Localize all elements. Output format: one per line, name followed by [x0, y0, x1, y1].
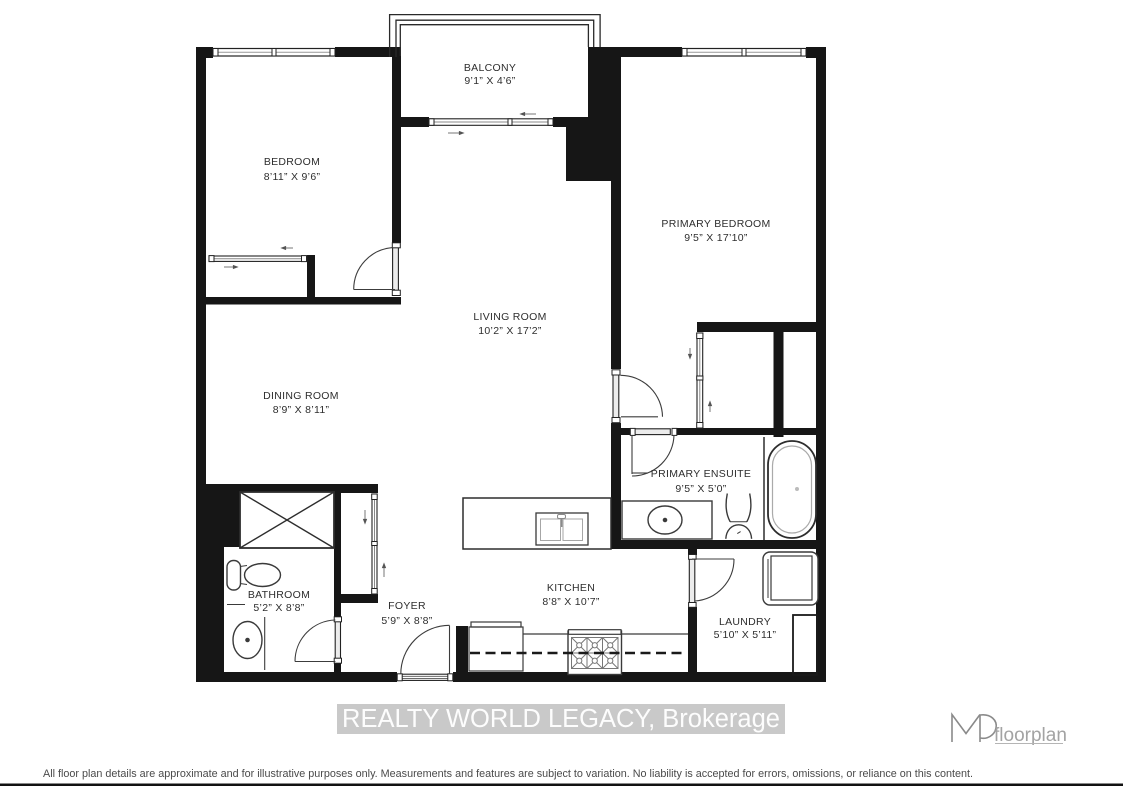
- svg-text:PRIMARY ENSUITE: PRIMARY ENSUITE: [651, 468, 751, 480]
- svg-text:9’5” X 5’0”: 9’5” X 5’0”: [675, 483, 726, 495]
- svg-text:BEDROOM: BEDROOM: [264, 156, 320, 168]
- svg-text:LAUNDRY: LAUNDRY: [719, 616, 771, 628]
- svg-text:5’9” X 8’8”: 5’9” X 8’8”: [381, 615, 432, 627]
- svg-text:8’9” X 8’11”: 8’9” X 8’11”: [273, 404, 330, 416]
- svg-text:REALTY WORLD LEGACY, Brokerage: REALTY WORLD LEGACY, Brokerage: [342, 705, 780, 733]
- svg-text:5’10” X 5’11”: 5’10” X 5’11”: [714, 629, 777, 641]
- svg-text:9’1” X 4’6”: 9’1” X 4’6”: [464, 75, 515, 87]
- svg-text:KITCHEN: KITCHEN: [547, 582, 595, 594]
- svg-text:8’8” X 10’7”: 8’8” X 10’7”: [542, 596, 599, 608]
- svg-text:LIVING ROOM: LIVING ROOM: [473, 311, 546, 323]
- svg-text:8’11” X 9’6”: 8’11” X 9’6”: [264, 171, 321, 183]
- svg-text:5’2” X 8’8”: 5’2” X 8’8”: [253, 602, 304, 614]
- svg-text:BATHROOM: BATHROOM: [248, 589, 310, 601]
- svg-text:DINING ROOM: DINING ROOM: [263, 390, 339, 402]
- svg-text:9’5” X 17’10”: 9’5” X 17’10”: [684, 232, 748, 244]
- svg-text:PRIMARY BEDROOM: PRIMARY BEDROOM: [661, 218, 770, 230]
- svg-text:10’2” X 17’2”: 10’2” X 17’2”: [478, 325, 542, 337]
- svg-text:FOYER: FOYER: [388, 600, 426, 612]
- svg-text:BALCONY: BALCONY: [464, 62, 516, 74]
- svg-text:All floor plan details are app: All floor plan details are approximate a…: [43, 768, 973, 780]
- svg-text:floorplan: floorplan: [994, 725, 1067, 746]
